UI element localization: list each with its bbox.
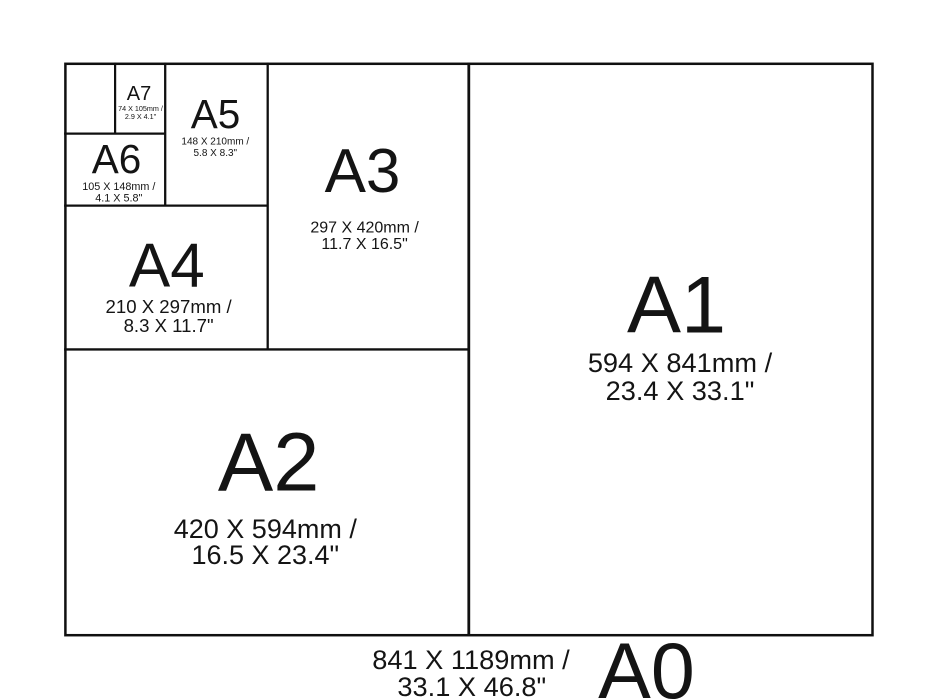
svg-text:23.4 X 33.1": 23.4 X 33.1" <box>606 375 755 406</box>
svg-text:11.7 X 16.5": 11.7 X 16.5" <box>321 236 407 253</box>
svg-text:A5: A5 <box>191 91 241 137</box>
svg-text:297 X 420mm /: 297 X 420mm / <box>310 220 419 237</box>
svg-text:A3: A3 <box>325 137 401 206</box>
svg-text:594 X 841mm /: 594 X 841mm / <box>588 347 773 378</box>
svg-text:A1: A1 <box>627 261 726 351</box>
svg-text:210 X 297mm /: 210 X 297mm / <box>106 296 233 317</box>
svg-text:105 X 148mm /: 105 X 148mm / <box>82 181 155 193</box>
svg-text:A4: A4 <box>129 231 205 300</box>
svg-text:A0: A0 <box>598 626 695 700</box>
svg-text:5.8 X 8.3": 5.8 X 8.3" <box>194 148 238 159</box>
svg-text:A7: A7 <box>127 83 151 105</box>
svg-text:2.9 X 4.1": 2.9 X 4.1" <box>125 112 157 121</box>
svg-text:8.3 X 11.7": 8.3 X 11.7" <box>124 315 214 336</box>
svg-text:33.1 X 46.8": 33.1 X 46.8" <box>397 671 546 700</box>
svg-text:A6: A6 <box>92 136 142 182</box>
svg-text:A2: A2 <box>218 415 320 508</box>
svg-text:16.5 X 23.4": 16.5 X 23.4" <box>191 540 339 570</box>
svg-text:148 X 210mm /: 148 X 210mm / <box>181 137 249 148</box>
svg-text:4.1 X 5.8": 4.1 X 5.8" <box>95 193 142 205</box>
